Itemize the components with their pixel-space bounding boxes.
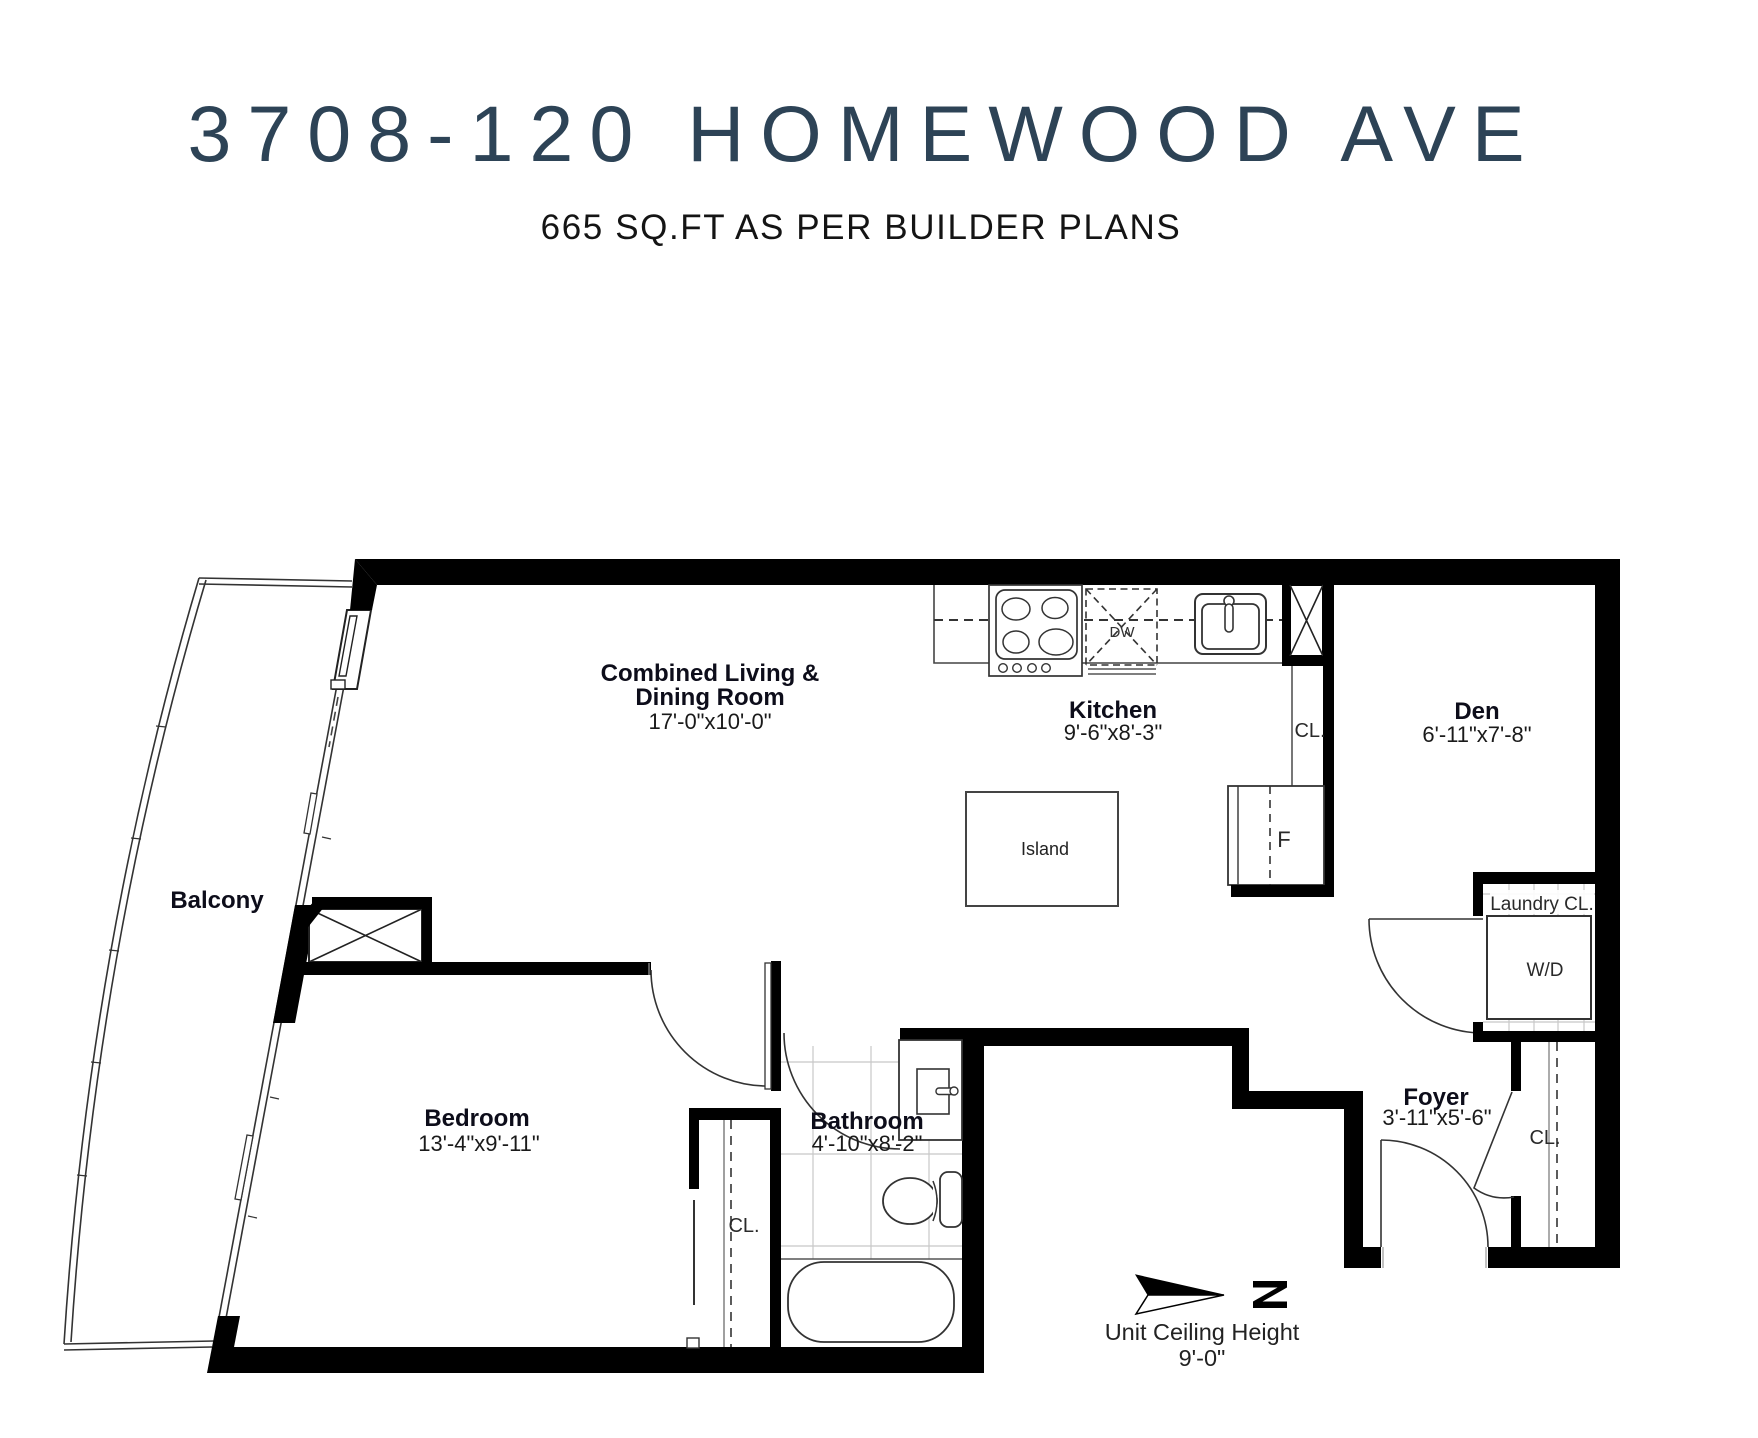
svg-text:CL.: CL. xyxy=(1294,720,1325,742)
svg-text:Den: Den xyxy=(1454,698,1499,725)
svg-text:Balcony: Balcony xyxy=(170,887,264,914)
svg-text:17'-0"x10'-0": 17'-0"x10'-0" xyxy=(648,709,771,734)
svg-text:CL.: CL. xyxy=(1529,1127,1560,1149)
svg-text:Island: Island xyxy=(1021,839,1069,859)
svg-text:9'-0": 9'-0" xyxy=(1179,1345,1226,1371)
svg-text:9'-6"x8'-3": 9'-6"x8'-3" xyxy=(1064,720,1163,745)
svg-text:6'-11"x7'-8": 6'-11"x7'-8" xyxy=(1422,722,1531,747)
svg-text:Unit Ceiling Height: Unit Ceiling Height xyxy=(1105,1319,1300,1345)
svg-text:3'-11"x5'-6": 3'-11"x5'-6" xyxy=(1382,1105,1491,1130)
svg-text:CL.: CL. xyxy=(728,1215,759,1237)
svg-text:Laundry CL.: Laundry CL. xyxy=(1490,894,1594,915)
svg-text:DW: DW xyxy=(1110,624,1136,641)
svg-text:13'-4"x9'-11": 13'-4"x9'-11" xyxy=(418,1131,539,1156)
svg-text:Dining Room: Dining Room xyxy=(635,684,784,711)
svg-text:4'-10"x8'-2": 4'-10"x8'-2" xyxy=(812,1131,923,1156)
svg-text:665 SQ.FT AS PER BUILDER PLANS: 665 SQ.FT AS PER BUILDER PLANS xyxy=(541,208,1182,247)
svg-text:F: F xyxy=(1277,827,1290,852)
svg-text:W/D: W/D xyxy=(1527,960,1564,981)
svg-text:3708-120 HOMEWOOD AVE: 3708-120 HOMEWOOD AVE xyxy=(187,89,1540,178)
svg-text:Bedroom: Bedroom xyxy=(424,1105,529,1132)
svg-text:Combined Living &: Combined Living & xyxy=(601,660,820,687)
